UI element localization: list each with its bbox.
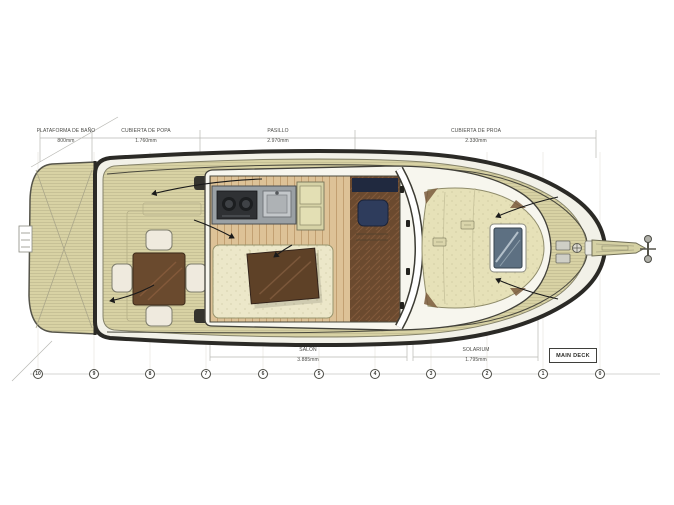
- dim-fore-deck: CUBIERTA DE PROA 2.330mm: [451, 129, 501, 144]
- deck-plan-sheet: PLATAFORMA DE BAÑO 800mm CUBIERTA DE POP…: [0, 0, 674, 505]
- station-marker-7: 7: [201, 369, 211, 379]
- dim-label-text: PASILLO: [267, 129, 289, 134]
- salon: [210, 176, 400, 322]
- dim-walkway: PASILLO 2.970mm: [267, 129, 289, 144]
- stern-ladder: [19, 226, 32, 252]
- companionway-steps: [297, 182, 324, 230]
- anchor: [640, 236, 656, 263]
- dim-value-text: 1.760mm: [121, 139, 170, 144]
- deck-plan-drawing: [0, 0, 674, 505]
- galley-counter: [212, 186, 296, 224]
- dim-value-text: 3.885mm: [297, 358, 319, 363]
- dim-solarium: SOLARIUM 1.795mm: [463, 348, 490, 363]
- station-marker-2: 2: [482, 369, 492, 379]
- plan-title: MAIN DECK: [556, 353, 590, 359]
- station-marker-1: 1: [538, 369, 548, 379]
- dim-value-text: 2.330mm: [451, 139, 501, 144]
- dim-value-text: 1.795mm: [463, 358, 490, 363]
- dim-label-text: CUBIERTA DE POPA: [121, 129, 170, 134]
- dim-salon: SALON 3.885mm: [297, 348, 319, 363]
- bowsprit: [592, 240, 645, 256]
- sink: [263, 191, 291, 217]
- dim-aft-deck: CUBIERTA DE POPA 1.760mm: [121, 129, 170, 144]
- walnut-floor: [350, 176, 400, 322]
- dim-value-text: 800mm: [37, 139, 96, 144]
- station-marker-3: 3: [426, 369, 436, 379]
- plan-title-box: MAIN DECK: [549, 348, 597, 363]
- dim-label-text: SOLARIUM: [463, 348, 490, 353]
- station-marker-10: 10: [33, 369, 43, 379]
- station-marker-0: 0: [595, 369, 605, 379]
- dim-label-text: CUBIERTA DE PROA: [451, 129, 501, 134]
- swim-platform: [19, 162, 96, 334]
- station-marker-4: 4: [370, 369, 380, 379]
- bow-hatch: [490, 224, 526, 272]
- cockpit-table: [133, 253, 185, 305]
- dim-label-text: PLATAFORMA DE BAÑO: [37, 129, 96, 134]
- dim-swim-platform: PLATAFORMA DE BAÑO 800mm: [37, 129, 96, 144]
- station-marker-9: 9: [89, 369, 99, 379]
- dim-label-text: SALON: [297, 348, 319, 353]
- station-marker-5: 5: [314, 369, 324, 379]
- salon-table: [247, 248, 323, 309]
- station-marker-8: 8: [145, 369, 155, 379]
- stove: [217, 191, 257, 219]
- station-marker-6: 6: [258, 369, 268, 379]
- dim-value-text: 2.970mm: [267, 139, 289, 144]
